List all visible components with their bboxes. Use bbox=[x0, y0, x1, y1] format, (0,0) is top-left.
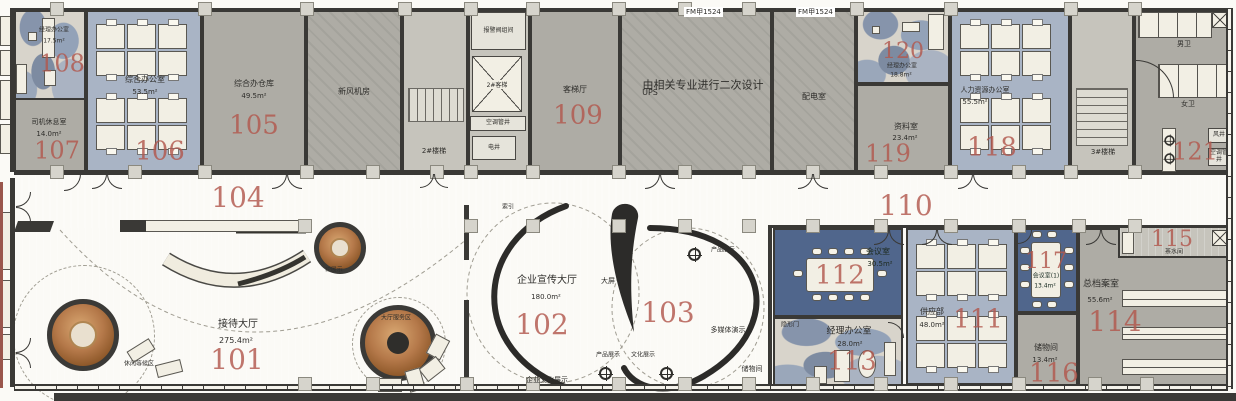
index-label: 索引 bbox=[502, 203, 514, 210]
column bbox=[50, 165, 64, 179]
desk-cluster bbox=[960, 24, 1051, 76]
toilet-stalls bbox=[1138, 12, 1212, 38]
room-111-name: 供应部 bbox=[920, 307, 944, 317]
chair bbox=[877, 270, 887, 277]
room-101-name: 接待大厅 bbox=[218, 319, 258, 331]
product-display-label: 产品展示 bbox=[711, 246, 735, 253]
chair bbox=[28, 32, 37, 41]
desk bbox=[127, 98, 156, 123]
column bbox=[1064, 165, 1078, 179]
column bbox=[366, 377, 380, 391]
sink-unit bbox=[1122, 232, 1134, 254]
column bbox=[1012, 377, 1026, 391]
desk bbox=[1022, 51, 1051, 76]
column bbox=[300, 2, 314, 16]
room-120-name: 经理办公室 bbox=[887, 62, 917, 69]
column bbox=[944, 2, 958, 16]
column bbox=[1064, 2, 1078, 16]
room-120-number: 120 bbox=[882, 39, 924, 65]
room-113-name: 经理办公室 bbox=[826, 327, 871, 338]
room-105-number: 105 bbox=[229, 110, 279, 141]
electrical-shaft: 电井 bbox=[472, 136, 516, 160]
chair bbox=[860, 294, 870, 301]
room-distribution bbox=[772, 8, 856, 172]
chair bbox=[1020, 281, 1030, 288]
room-106-name: 综合办公室 bbox=[125, 75, 165, 85]
column bbox=[944, 377, 958, 391]
room-107-name: 司机休息室 bbox=[32, 118, 67, 126]
chair bbox=[828, 248, 838, 255]
floor-plan: 104 110 经理办公室 17.5m² 108 司机休息室 14.0m² 10… bbox=[0, 0, 1236, 401]
room-109-number: 109 bbox=[553, 100, 603, 131]
wall-segment bbox=[768, 228, 772, 385]
column bbox=[678, 219, 692, 233]
desk bbox=[960, 51, 989, 76]
room-102-number: 102 bbox=[515, 308, 568, 342]
column bbox=[612, 2, 626, 16]
desk bbox=[96, 24, 125, 49]
stair-2-label: 2#楼梯 bbox=[422, 147, 446, 155]
room-119-name: 资料室 bbox=[894, 122, 918, 132]
desk bbox=[978, 244, 1007, 269]
column bbox=[612, 377, 626, 391]
desk bbox=[158, 24, 187, 49]
room-104-number: 104 bbox=[211, 181, 264, 215]
room-112-number: 112 bbox=[815, 260, 865, 291]
column bbox=[198, 165, 212, 179]
exterior-wall-left-top bbox=[10, 8, 15, 172]
room-105-area: 49.5m² bbox=[241, 92, 266, 100]
mens-toilet-label: 男卫 bbox=[1177, 40, 1191, 48]
column bbox=[806, 219, 820, 233]
desk bbox=[916, 343, 945, 368]
storage-zone-label: 储物间 bbox=[742, 365, 763, 373]
seat-ring bbox=[69, 321, 98, 350]
room-107-number: 107 bbox=[34, 137, 80, 166]
column bbox=[1128, 219, 1142, 233]
room-105-name: 综合办仓库 bbox=[234, 79, 274, 89]
chair bbox=[793, 270, 803, 277]
desk bbox=[947, 271, 976, 296]
column bbox=[298, 219, 312, 233]
desk bbox=[978, 271, 1007, 296]
column bbox=[742, 165, 756, 179]
column bbox=[806, 377, 820, 391]
desk bbox=[127, 24, 156, 49]
hall-service-label: 大厅服务区 bbox=[381, 314, 411, 321]
room-120-area: 18.8m² bbox=[890, 71, 912, 78]
column bbox=[464, 2, 478, 16]
display-partition bbox=[120, 220, 308, 232]
big-screen-label: 大屏 bbox=[601, 277, 615, 285]
disc-center bbox=[387, 332, 409, 354]
culture-wall-label: 企业文化展示 bbox=[526, 376, 568, 384]
wall-segment bbox=[464, 300, 469, 385]
hidden-door-label: 隐形门 bbox=[781, 321, 799, 328]
room-114-area: 55.6m² bbox=[1087, 296, 1112, 304]
chair bbox=[1047, 231, 1057, 238]
ac-shaft: 空调管井 bbox=[470, 116, 526, 131]
column bbox=[742, 377, 756, 391]
room-118-area: 55.5m² bbox=[962, 98, 987, 106]
desk bbox=[991, 98, 1020, 123]
desk bbox=[991, 24, 1020, 49]
desk bbox=[1022, 98, 1051, 123]
waiting-zone-label: 休闲等候区 bbox=[124, 360, 154, 367]
desk bbox=[1022, 24, 1051, 49]
desk bbox=[902, 22, 920, 32]
exterior-wall-left-bottom bbox=[10, 178, 15, 387]
room-108-number: 108 bbox=[39, 50, 85, 79]
room-116-number: 116 bbox=[1029, 358, 1079, 389]
column bbox=[742, 219, 756, 233]
chair bbox=[828, 294, 838, 301]
column bbox=[1128, 165, 1142, 179]
desk bbox=[1022, 125, 1051, 150]
column bbox=[298, 377, 312, 391]
desk bbox=[96, 125, 125, 150]
desk bbox=[960, 24, 989, 49]
cabinet bbox=[884, 342, 896, 376]
desk bbox=[96, 51, 125, 76]
room-117-area: 13.4m² bbox=[1034, 282, 1056, 289]
column bbox=[464, 219, 478, 233]
cabinet bbox=[928, 14, 944, 50]
left-edge-accent bbox=[0, 182, 3, 388]
room-108-name: 经理办公室 bbox=[39, 26, 69, 33]
column bbox=[678, 377, 692, 391]
column bbox=[464, 165, 478, 179]
stair-3-label: 3#楼梯 bbox=[1091, 148, 1115, 156]
column bbox=[50, 2, 64, 16]
fresh-air-label: 新风机房 bbox=[338, 87, 370, 97]
elevator-2-label: 2#客梯 bbox=[486, 80, 509, 89]
chair bbox=[812, 248, 822, 255]
room-101-number: 101 bbox=[210, 343, 263, 377]
room-110-number: 110 bbox=[879, 189, 932, 223]
room-109-name: 客梯厅 bbox=[563, 85, 587, 95]
chair bbox=[1032, 231, 1042, 238]
desk bbox=[916, 244, 945, 269]
room-102-area: 180.0m² bbox=[531, 293, 561, 301]
partition-dark-cap bbox=[120, 220, 146, 232]
column bbox=[366, 165, 380, 179]
chair bbox=[844, 294, 854, 301]
desk bbox=[158, 98, 187, 123]
display-point bbox=[660, 367, 673, 380]
room-118-number: 118 bbox=[967, 132, 1017, 163]
room-112-name: 会议室 bbox=[866, 247, 890, 257]
chair bbox=[844, 248, 854, 255]
room-117-number: 117 bbox=[1025, 249, 1067, 275]
cabinet bbox=[16, 64, 27, 94]
room-114-name: 总档案室 bbox=[1083, 280, 1119, 291]
display-ring bbox=[330, 238, 349, 257]
chair bbox=[1032, 301, 1042, 308]
column bbox=[742, 2, 756, 16]
room-115-name: 茶水间 bbox=[1165, 248, 1183, 255]
column bbox=[612, 219, 626, 233]
chair bbox=[1064, 281, 1074, 288]
room-113-number: 113 bbox=[827, 346, 877, 377]
column bbox=[1012, 165, 1026, 179]
column bbox=[300, 165, 314, 179]
display-point bbox=[599, 367, 612, 380]
column bbox=[1128, 2, 1142, 16]
column bbox=[678, 165, 692, 179]
fire-door-label: FM甲1524 bbox=[796, 7, 835, 17]
partition-wedge bbox=[14, 221, 54, 232]
column bbox=[398, 2, 412, 16]
product-display-label: 产品展示 bbox=[596, 351, 620, 358]
column bbox=[198, 2, 212, 16]
chair bbox=[872, 26, 880, 34]
ip-display-label: IP展示 bbox=[325, 266, 342, 273]
multimedia-label: 多媒体演示 bbox=[711, 326, 746, 334]
column bbox=[612, 165, 626, 179]
ground-shadow-strip bbox=[54, 393, 1236, 401]
desk bbox=[947, 244, 976, 269]
elevator-2: 2#客梯 bbox=[472, 56, 522, 112]
column bbox=[526, 2, 540, 16]
desk-cluster bbox=[916, 244, 1007, 296]
display-point bbox=[688, 248, 701, 261]
alarm-valve-room: 报警阀组间 bbox=[471, 12, 526, 50]
archive-shelf bbox=[1122, 359, 1228, 375]
desk bbox=[991, 51, 1020, 76]
chair bbox=[812, 294, 822, 301]
column bbox=[874, 377, 888, 391]
room-118-name: 人力资源办公室 bbox=[961, 86, 1010, 94]
room-102-name: 企业宣传大厅 bbox=[517, 275, 577, 287]
desk bbox=[916, 271, 945, 296]
room-108-area: 17.5m² bbox=[43, 37, 65, 44]
desk-cluster bbox=[96, 24, 187, 76]
room-121-number: 121 bbox=[1172, 138, 1218, 167]
secondary-design-note: 由相关专业进行二次设计 bbox=[643, 78, 764, 91]
desk bbox=[127, 51, 156, 76]
column bbox=[460, 377, 474, 391]
womens-toilet-label: 女卫 bbox=[1181, 100, 1195, 108]
column bbox=[1072, 219, 1086, 233]
room-105 bbox=[202, 8, 306, 172]
room-111-number: 111 bbox=[953, 304, 1003, 335]
room-116-name: 储物间 bbox=[1034, 343, 1058, 353]
desk bbox=[978, 343, 1007, 368]
chair bbox=[1047, 301, 1057, 308]
column bbox=[850, 2, 864, 16]
room-117-name: 会议室(1) bbox=[1033, 272, 1060, 279]
stairs-glyph bbox=[1076, 88, 1128, 146]
round-seat-large bbox=[47, 299, 119, 371]
column bbox=[526, 165, 540, 179]
room-112-area: 30.5m² bbox=[867, 260, 892, 268]
desk bbox=[158, 51, 187, 76]
room-119-number: 119 bbox=[865, 140, 911, 169]
room-114-number: 114 bbox=[1088, 305, 1141, 339]
distribution-label: 配电室 bbox=[802, 92, 826, 102]
room-111-area: 48.0m² bbox=[919, 321, 944, 329]
exterior-wall-right bbox=[1226, 8, 1233, 389]
column bbox=[1088, 377, 1102, 391]
desk bbox=[96, 98, 125, 123]
room-106-area: 53.5m² bbox=[132, 88, 157, 96]
stairs-glyph bbox=[408, 88, 464, 122]
culture-display-label: 文化展示 bbox=[631, 351, 655, 358]
column bbox=[526, 219, 540, 233]
room-106-number: 106 bbox=[135, 136, 185, 167]
room-103-number: 103 bbox=[641, 296, 694, 330]
column bbox=[944, 165, 958, 179]
desk bbox=[947, 343, 976, 368]
column bbox=[1140, 377, 1154, 391]
fire-door-label: FM甲1524 bbox=[684, 7, 723, 17]
